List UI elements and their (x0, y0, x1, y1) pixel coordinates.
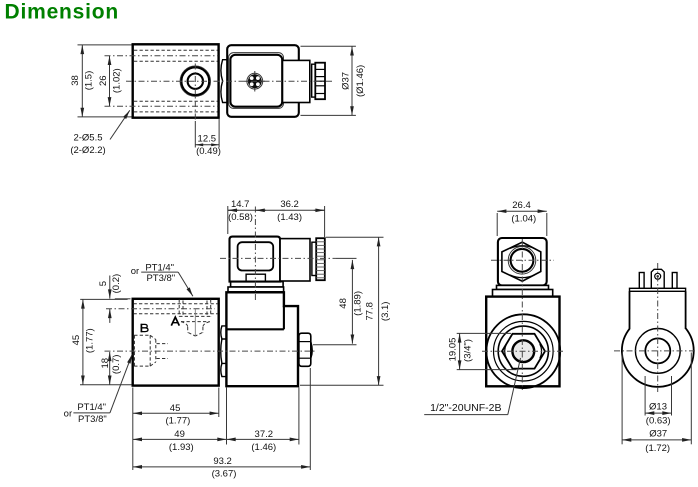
svg-text:(0.58): (0.58) (228, 212, 253, 223)
svg-text:(1.77): (1.77) (84, 328, 95, 353)
svg-text:(2-Ø2.2): (2-Ø2.2) (70, 145, 105, 156)
svg-text:77.8: 77.8 (365, 302, 376, 321)
svg-text:PT1/4": PT1/4" (77, 402, 106, 413)
svg-text:(Ø1.46): (Ø1.46) (355, 65, 366, 97)
svg-text:(1.46): (1.46) (251, 442, 276, 453)
svg-text:(0.2): (0.2) (111, 274, 122, 294)
svg-text:(0.49): (0.49) (196, 146, 221, 157)
svg-text:45: 45 (71, 335, 82, 346)
svg-text:PT3/8": PT3/8" (146, 273, 175, 284)
svg-text:(3/4"): (3/4") (463, 339, 474, 362)
svg-text:14.7: 14.7 (231, 199, 250, 210)
svg-text:(1.5): (1.5) (83, 71, 94, 91)
svg-text:(3.1): (3.1) (380, 302, 391, 322)
svg-text:2-Ø5.5: 2-Ø5.5 (73, 133, 102, 144)
svg-text:12.5: 12.5 (198, 133, 217, 144)
svg-text:(1.72): (1.72) (645, 443, 670, 454)
svg-text:(0.7): (0.7) (111, 355, 122, 375)
svg-text:36.2: 36.2 (280, 199, 299, 210)
svg-text:18: 18 (100, 358, 111, 369)
svg-text:(1.04): (1.04) (511, 214, 536, 225)
svg-text:49: 49 (174, 429, 185, 440)
svg-text:PT3/8": PT3/8" (78, 414, 107, 425)
svg-text:45: 45 (170, 403, 181, 414)
svg-text:26: 26 (98, 75, 109, 86)
svg-text:(3.67): (3.67) (212, 468, 237, 479)
svg-text:Ø37: Ø37 (340, 72, 351, 90)
svg-text:(0.63): (0.63) (646, 416, 671, 427)
svg-text:(1.93): (1.93) (169, 442, 194, 453)
svg-text:(1.77): (1.77) (165, 415, 190, 426)
svg-text:or: or (64, 408, 72, 419)
svg-text:5: 5 (98, 281, 109, 286)
svg-text:1/2"-20UNF-2B: 1/2"-20UNF-2B (430, 402, 501, 414)
svg-text:(1.43): (1.43) (277, 212, 302, 223)
svg-text:38: 38 (70, 75, 81, 86)
svg-text:48: 48 (338, 298, 349, 309)
svg-text:(1.02): (1.02) (111, 68, 122, 93)
svg-text:26.4: 26.4 (512, 200, 531, 211)
svg-text:19.05: 19.05 (448, 338, 459, 362)
svg-text:Ø37: Ø37 (649, 428, 667, 439)
svg-text:or: or (131, 266, 139, 277)
svg-text:37.2: 37.2 (255, 429, 274, 440)
svg-text:Ø13: Ø13 (649, 402, 667, 413)
svg-text:(1.89): (1.89) (352, 291, 363, 316)
svg-text:93.2: 93.2 (213, 456, 232, 467)
svg-text:Dimension: Dimension (5, 1, 120, 24)
